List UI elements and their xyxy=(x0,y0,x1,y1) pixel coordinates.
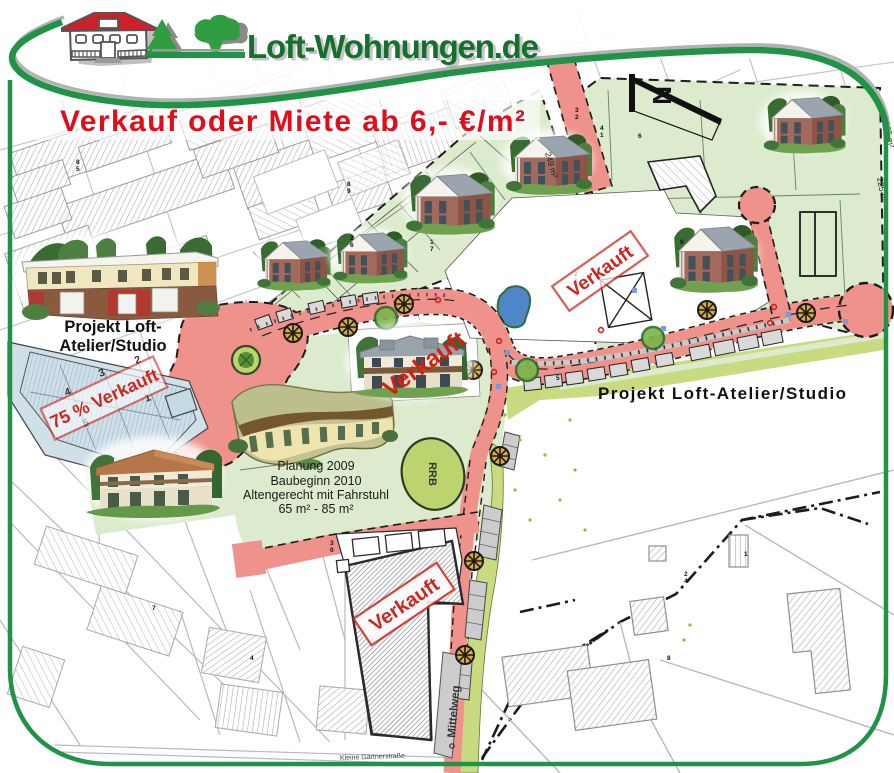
svg-text:7: 7 xyxy=(430,246,434,253)
svg-text:8: 8 xyxy=(76,159,80,166)
svg-text:4: 4 xyxy=(250,655,254,662)
svg-text:6: 6 xyxy=(638,133,642,140)
svg-text:N: N xyxy=(647,86,677,105)
svg-text:2: 2 xyxy=(350,235,354,242)
svg-text:65 m² - 85 m²: 65 m² - 85 m² xyxy=(278,502,353,516)
svg-text:Verkauf oder Miete ab 6,- €/m²: Verkauf oder Miete ab 6,- €/m² xyxy=(60,105,525,138)
svg-text:6: 6 xyxy=(350,242,354,249)
svg-text:Projekt Loft-Atelier/Studio: Projekt Loft-Atelier/Studio xyxy=(598,384,846,403)
svg-text:3: 3 xyxy=(575,107,579,114)
svg-text:4: 4 xyxy=(600,125,604,132)
svg-text:4: 4 xyxy=(684,578,688,585)
svg-text:Projekt Loft-: Projekt Loft- xyxy=(64,318,161,336)
svg-text:5: 5 xyxy=(76,166,80,173)
svg-text:2: 2 xyxy=(684,571,688,578)
svg-text:Baubeginn 2010: Baubeginn 2010 xyxy=(270,474,361,488)
svg-text:Altengerecht mit Fahrstuhl: Altengerecht mit Fahrstuhl xyxy=(243,488,389,502)
svg-text:3: 3 xyxy=(330,540,334,547)
svg-text:5: 5 xyxy=(556,375,560,382)
svg-text:2: 2 xyxy=(575,114,579,121)
svg-text:0: 0 xyxy=(330,547,334,554)
svg-text:1: 1 xyxy=(430,239,434,246)
svg-text:RRB: RRB xyxy=(426,462,438,486)
svg-text:7: 7 xyxy=(152,605,156,612)
svg-text:Loft-Wohnungen.de: Loft-Wohnungen.de xyxy=(247,28,539,65)
svg-text:8: 8 xyxy=(347,181,351,188)
svg-text:9: 9 xyxy=(680,239,684,246)
svg-text:Planung 2009: Planung 2009 xyxy=(277,459,354,473)
svg-text:1: 1 xyxy=(600,132,604,139)
svg-text:8: 8 xyxy=(667,655,671,662)
svg-text:1: 1 xyxy=(744,551,748,558)
svg-text:Atelier/Studio: Atelier/Studio xyxy=(59,337,166,355)
svg-text:9: 9 xyxy=(347,188,351,195)
